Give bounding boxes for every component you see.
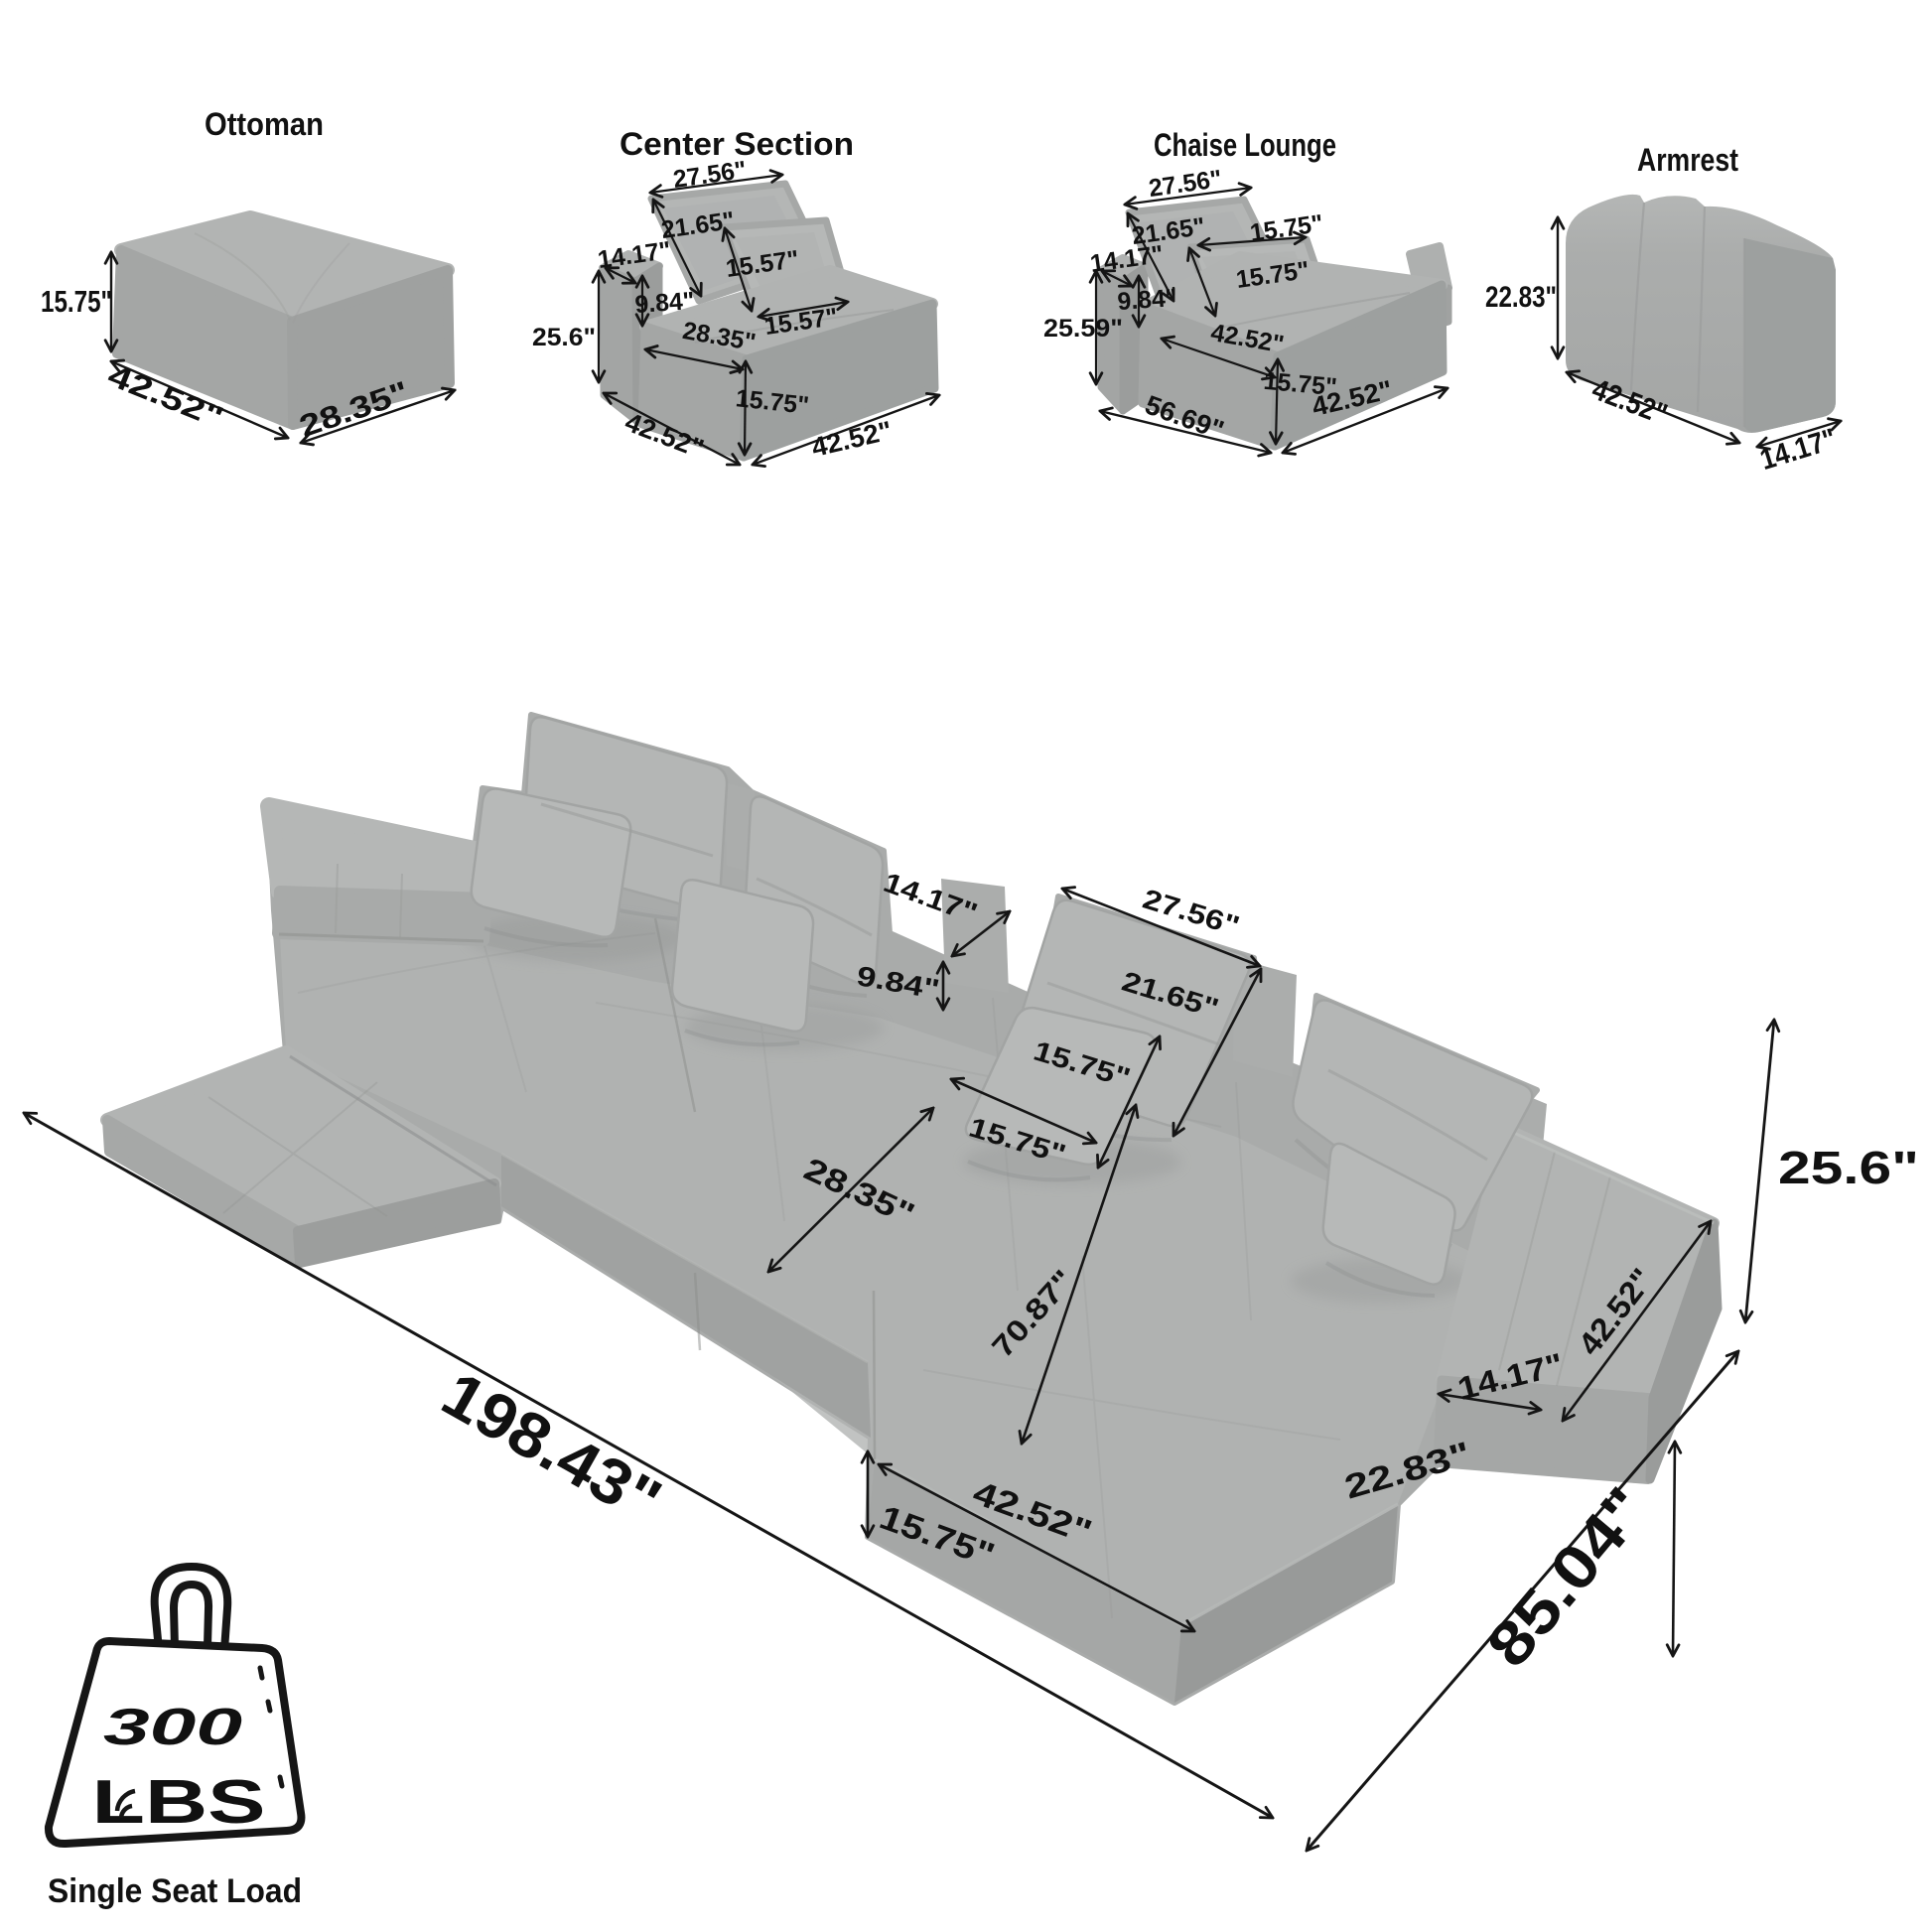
- svg-text:15.75": 15.75": [41, 284, 112, 319]
- svg-text:Single Seat Load: Single Seat Load: [48, 1872, 302, 1910]
- svg-text:9.84": 9.84": [1117, 284, 1178, 316]
- svg-text:198.43": 198.43": [431, 1357, 673, 1537]
- svg-text:9.84": 9.84": [634, 287, 696, 319]
- svg-text:25.6": 25.6": [1778, 1142, 1919, 1193]
- svg-text:22.83": 22.83": [1485, 281, 1557, 314]
- svg-text:15.75": 15.75": [1248, 209, 1324, 247]
- svg-text:300: 300: [103, 1699, 242, 1756]
- svg-text:Chaise Lounge: Chaise Lounge: [1154, 127, 1336, 163]
- svg-text:14.17": 14.17": [880, 867, 982, 929]
- svg-text:85.04": 85.04": [1474, 1474, 1662, 1680]
- svg-text:27.56": 27.56": [1147, 165, 1223, 203]
- svg-text:14.17": 14.17": [1756, 423, 1840, 477]
- svg-text:Ottoman: Ottoman: [205, 106, 324, 142]
- svg-text:Armrest: Armrest: [1637, 142, 1738, 178]
- svg-text:25.6": 25.6": [532, 324, 596, 351]
- svg-text:25.59": 25.59": [1043, 315, 1123, 343]
